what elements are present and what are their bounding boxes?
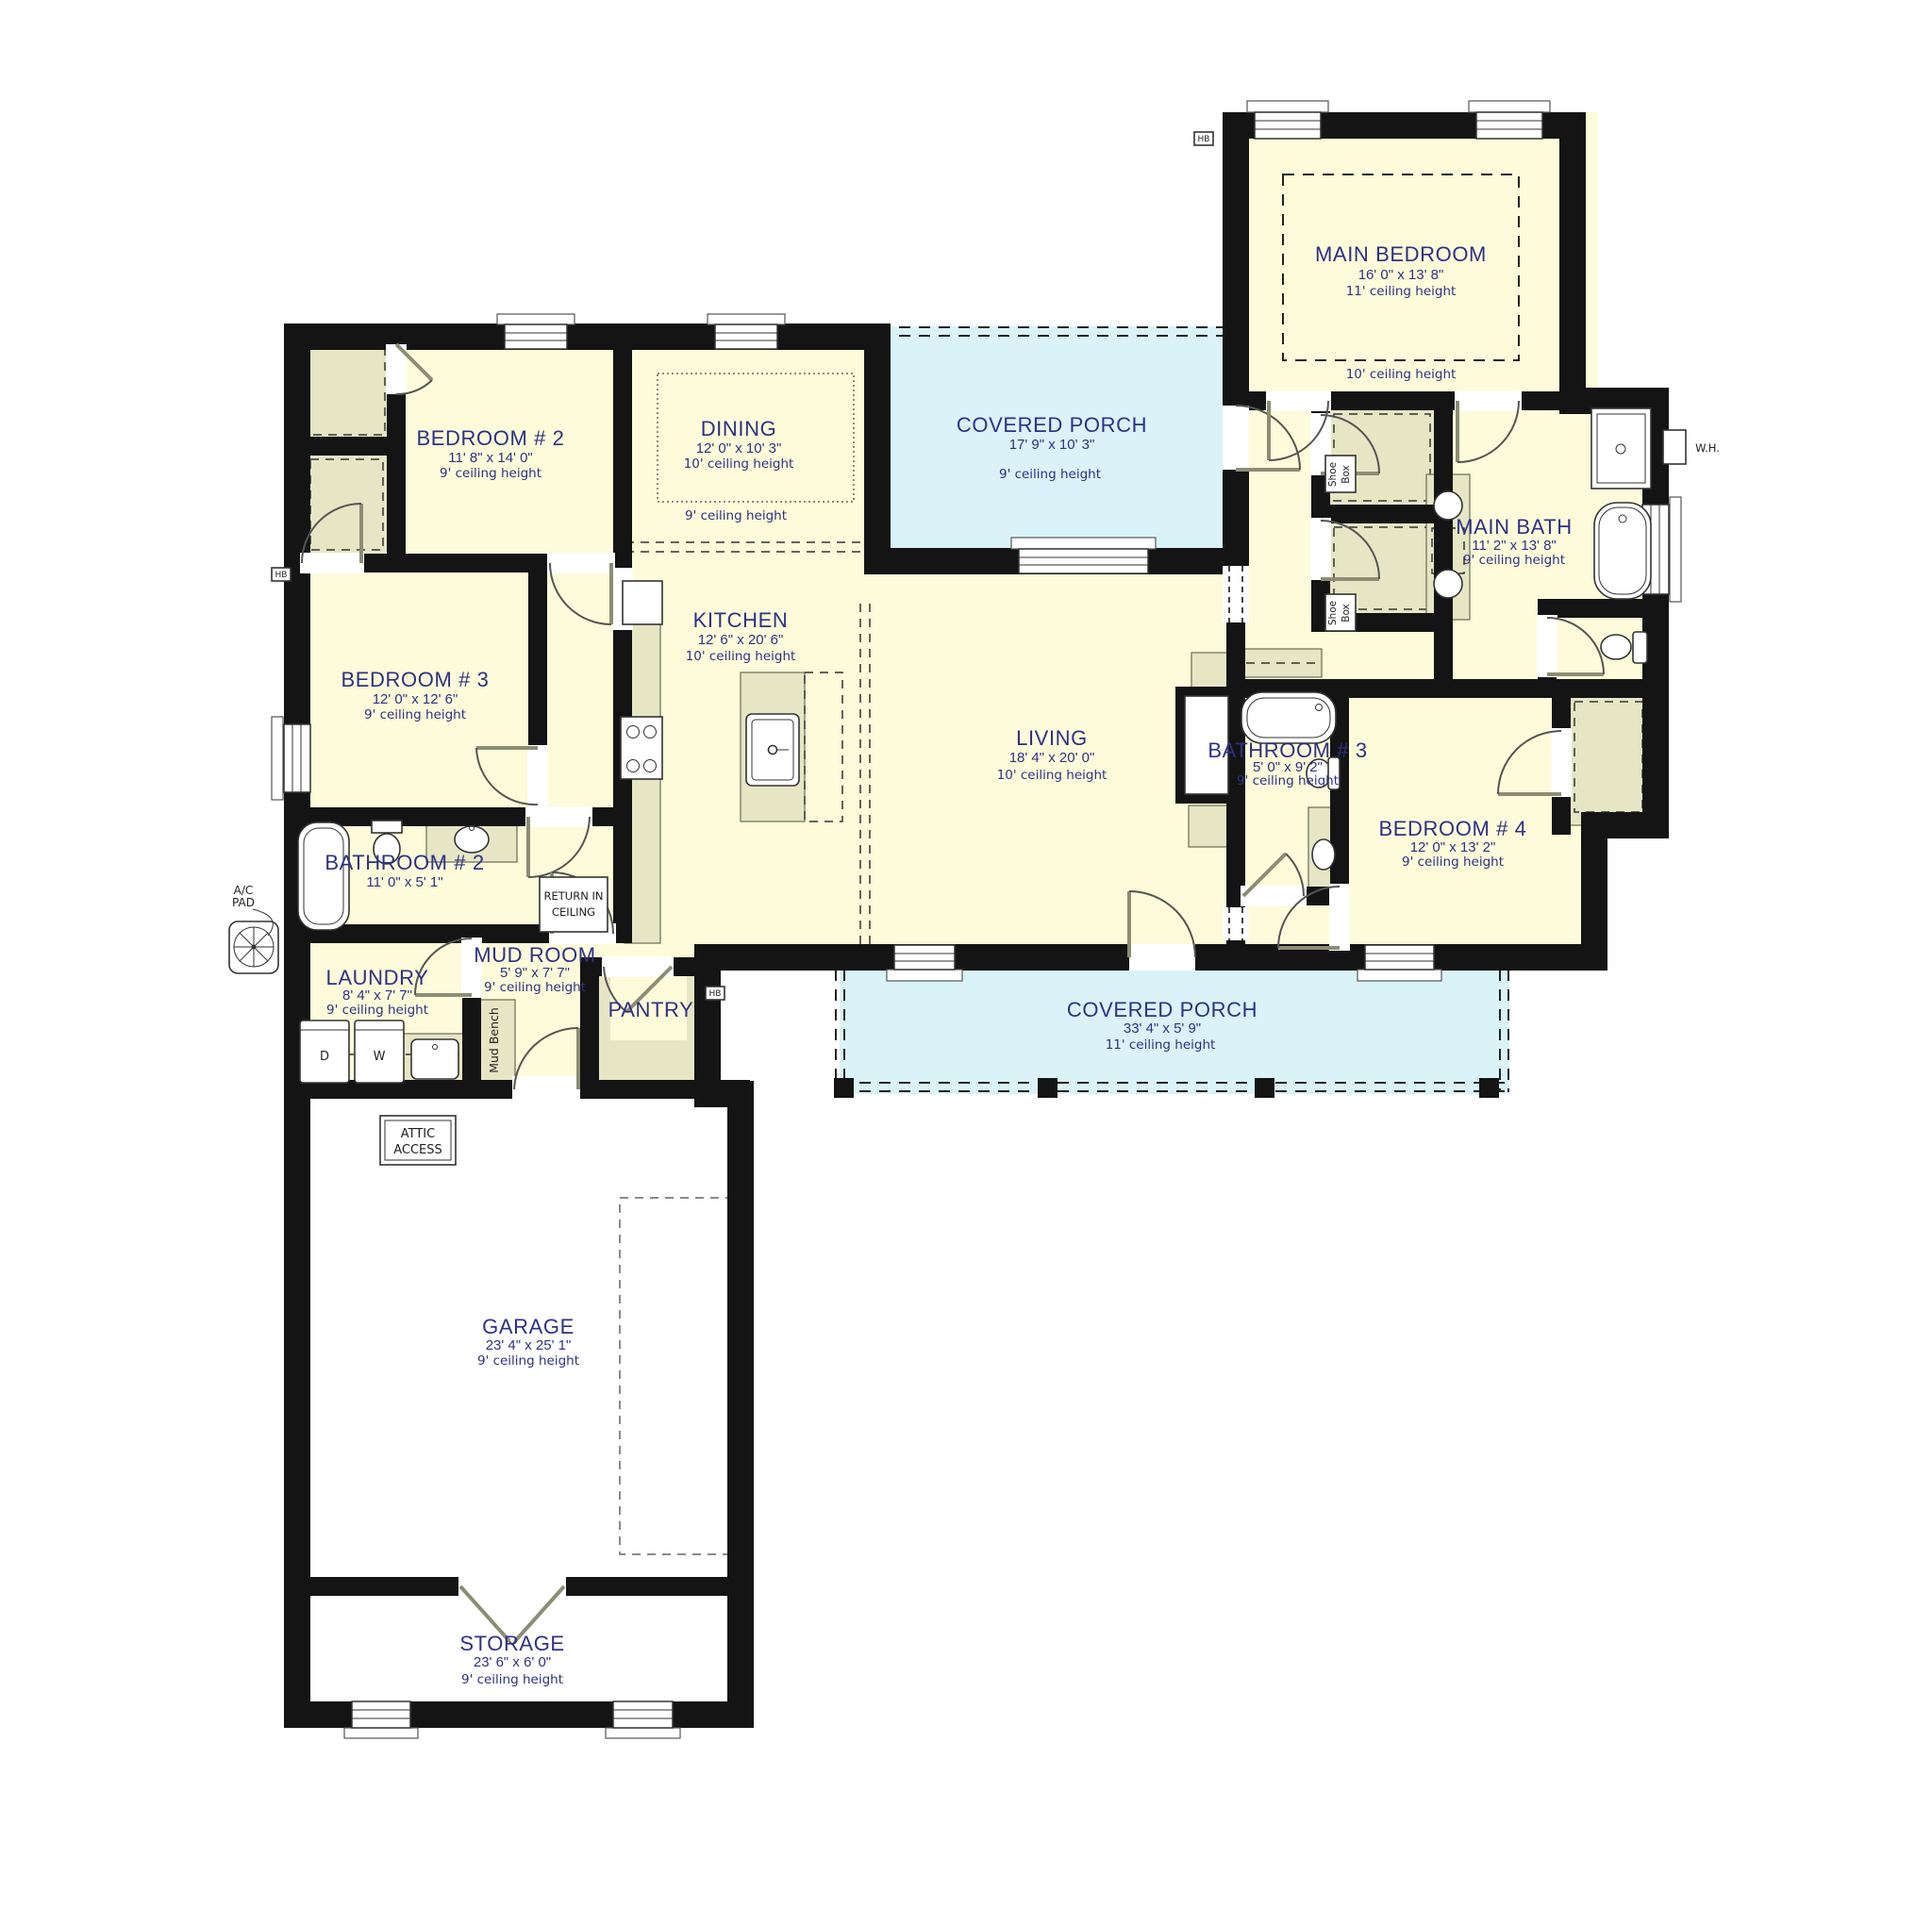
range-icon	[621, 717, 662, 779]
porch-post	[834, 1078, 854, 1098]
porch-post	[1038, 1078, 1058, 1098]
ac-pad-label: A/C	[234, 884, 254, 897]
window-bedroom4	[1357, 945, 1441, 981]
water-heater-unit	[1663, 430, 1686, 464]
return-air-box	[540, 877, 608, 932]
shower-icon	[1591, 408, 1651, 489]
floor-plan-page: MAIN BEDROOM16' 0" x 13' 8"11' ceiling h…	[0, 0, 1932, 1908]
room-dims: 8' 4" x 7' 7"	[342, 987, 412, 1004]
tub-icon	[1594, 503, 1651, 599]
utility-sink-icon	[411, 1039, 458, 1079]
porch-post	[1255, 1078, 1274, 1098]
porch-post	[1479, 1078, 1499, 1098]
room-name: LAUNDRY	[326, 966, 429, 989]
room-dims: 11' 2" x 13' 8"	[1472, 538, 1557, 554]
floor-plan-svg: MAIN BEDROOM16' 0" x 13' 8"11' ceiling h…	[0, 0, 1932, 1908]
room-ceiling: 11' ceiling height	[1106, 1037, 1216, 1053]
label-garage: GARAGE23' 4" x 25' 1"9' ceiling height	[477, 1315, 579, 1369]
room-name: COVERED PORCH	[1067, 998, 1257, 1021]
room-name: KITCHEN	[693, 608, 789, 632]
shoe-box-label: Shoe	[1327, 462, 1339, 487]
attic-access-label: ATTIC	[401, 1127, 435, 1141]
room-name: MAIN BATH	[1456, 515, 1573, 539]
attic-access-label: ACCESS	[393, 1143, 442, 1157]
room-dims: 18' 4" x 20' 0"	[1009, 750, 1095, 766]
room-dims: 11' 8" x 14' 0"	[448, 450, 533, 466]
window-main-bedroom-1	[1247, 101, 1328, 139]
room-name: LIVING	[1016, 726, 1088, 750]
room-ceiling: 9' ceiling height	[1402, 854, 1504, 870]
window-bedroom3	[272, 717, 310, 800]
room-dims: 12' 0" x 12' 6"	[373, 691, 458, 707]
room-name: BEDROOM # 4	[1379, 817, 1527, 840]
room-ceiling: 9' ceiling height	[1463, 553, 1565, 568]
room-ceiling: 10' ceiling height	[997, 768, 1108, 783]
room-name: BEDROOM # 3	[341, 668, 490, 691]
room-dims: 12' 6" x 20' 6"	[698, 632, 784, 648]
room-ceiling: 9' ceiling height	[326, 1003, 428, 1018]
shoe-box-label: Box	[1341, 465, 1352, 484]
room-dims: 23' 4" x 25' 1"	[486, 1337, 572, 1353]
label-main-bath: MAIN BATH11' 2" x 13' 8"9' ceiling heigh…	[1456, 515, 1573, 568]
room-fills	[285, 112, 1669, 1728]
mud-bench-label: Mud Bench	[487, 1007, 501, 1073]
room-ceiling: 10' ceiling height	[686, 649, 796, 664]
hose-bib-label: HB	[709, 989, 722, 999]
shoe-box-label: Box	[1341, 604, 1352, 622]
window-living-front	[887, 945, 962, 981]
room-ceiling: 9' ceiling height	[484, 980, 586, 995]
room-name: MUD ROOM	[474, 943, 595, 967]
return-air-label: CEILING	[552, 905, 595, 919]
room-ceiling: 9' ceiling height	[685, 508, 787, 523]
hose-bib-label: HB	[1198, 135, 1210, 144]
room-dims: 12' 0" x 10' 3"	[696, 440, 782, 456]
room-dims: 23' 6" x 6' 0"	[474, 1654, 551, 1670]
ac-pad-label: PAD	[232, 896, 255, 909]
room-ceiling: 10' ceiling height	[1346, 367, 1457, 382]
vanity-sink-icon	[1434, 570, 1462, 598]
return-air-label: RETURN IN	[544, 889, 604, 903]
room-name: STORAGE	[459, 1632, 564, 1655]
dryer-label: D	[320, 1050, 329, 1064]
room-ceiling: 9' ceiling height	[440, 466, 541, 481]
tub-icon	[298, 822, 349, 930]
window-storage-2	[606, 1701, 680, 1738]
room-ceiling: 9' ceiling height	[999, 467, 1101, 482]
room-dims: 12' 0" x 13' 2"	[1410, 839, 1496, 855]
hose-bib-label: HB	[275, 571, 288, 580]
room-dims: 17' 9" x 10' 3"	[1009, 437, 1095, 453]
room-dims: 16' 0" x 13' 8"	[1358, 267, 1444, 283]
window-living-rear	[1011, 538, 1156, 573]
room-dims: 5' 9" x 7' 7"	[500, 965, 570, 981]
washer-label: W	[374, 1050, 386, 1064]
room-name: BEDROOM # 2	[417, 426, 565, 450]
room-ceiling: 9' ceiling height	[1237, 773, 1339, 788]
room-name: PANTRY	[608, 998, 694, 1021]
room-dims: 11' 0" x 5' 1"	[366, 874, 442, 890]
window-main-bedroom-2	[1469, 101, 1550, 139]
water-heater-icon	[1663, 430, 1686, 464]
window-bedroom2	[497, 314, 575, 349]
sink-icon	[1312, 839, 1335, 870]
room-name: MAIN BEDROOM	[1315, 242, 1487, 266]
window-dining	[708, 314, 785, 349]
label-storage: STORAGE23' 6" x 6' 0"9' ceiling height	[459, 1632, 564, 1687]
room-ceiling: 9' ceiling height	[364, 707, 466, 722]
room-name: GARAGE	[482, 1315, 575, 1338]
room-dims: 33' 4" x 5' 9"	[1124, 1020, 1201, 1037]
shoe-box-label: Shoe	[1327, 601, 1339, 625]
label-pantry: PANTRY	[608, 998, 694, 1021]
bedroom4-closet	[1561, 689, 1656, 825]
window-storage-1	[344, 1701, 418, 1738]
label-kitchen: KITCHEN12' 6" x 20' 6"10' ceiling height	[686, 608, 796, 664]
water-heater-label: W.H.	[1695, 441, 1720, 455]
room-name: DINING	[701, 417, 777, 440]
room-name: BATHROOM # 2	[325, 851, 484, 874]
room-ceiling: 10' ceiling height	[684, 456, 794, 472]
room-ceiling: 9' ceiling height	[477, 1353, 579, 1369]
room-name: COVERED PORCH	[957, 413, 1147, 437]
fridge-icon	[623, 581, 662, 624]
ac-pad-unit	[229, 909, 278, 973]
bedroom2-closet	[297, 337, 396, 446]
room-ceiling: 11' ceiling height	[1346, 284, 1457, 299]
room-ceiling: 9' ceiling height	[461, 1672, 563, 1687]
toilet-icon	[1601, 635, 1631, 659]
